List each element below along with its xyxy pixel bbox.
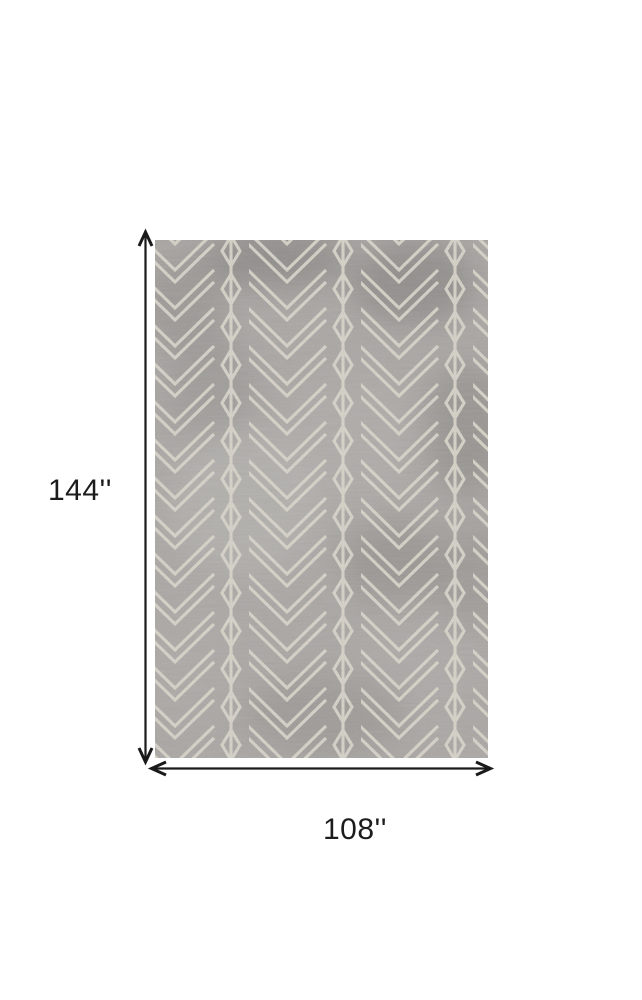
width-dimension-arrow (152, 762, 491, 775)
rug-pattern-graphic (155, 240, 488, 758)
rug-image (155, 240, 488, 758)
width-dimension-label: 108'' (290, 812, 420, 848)
height-dimension-label: 144'' (15, 473, 145, 509)
product-dimension-diagram: 144'' 108'' (0, 0, 642, 1000)
